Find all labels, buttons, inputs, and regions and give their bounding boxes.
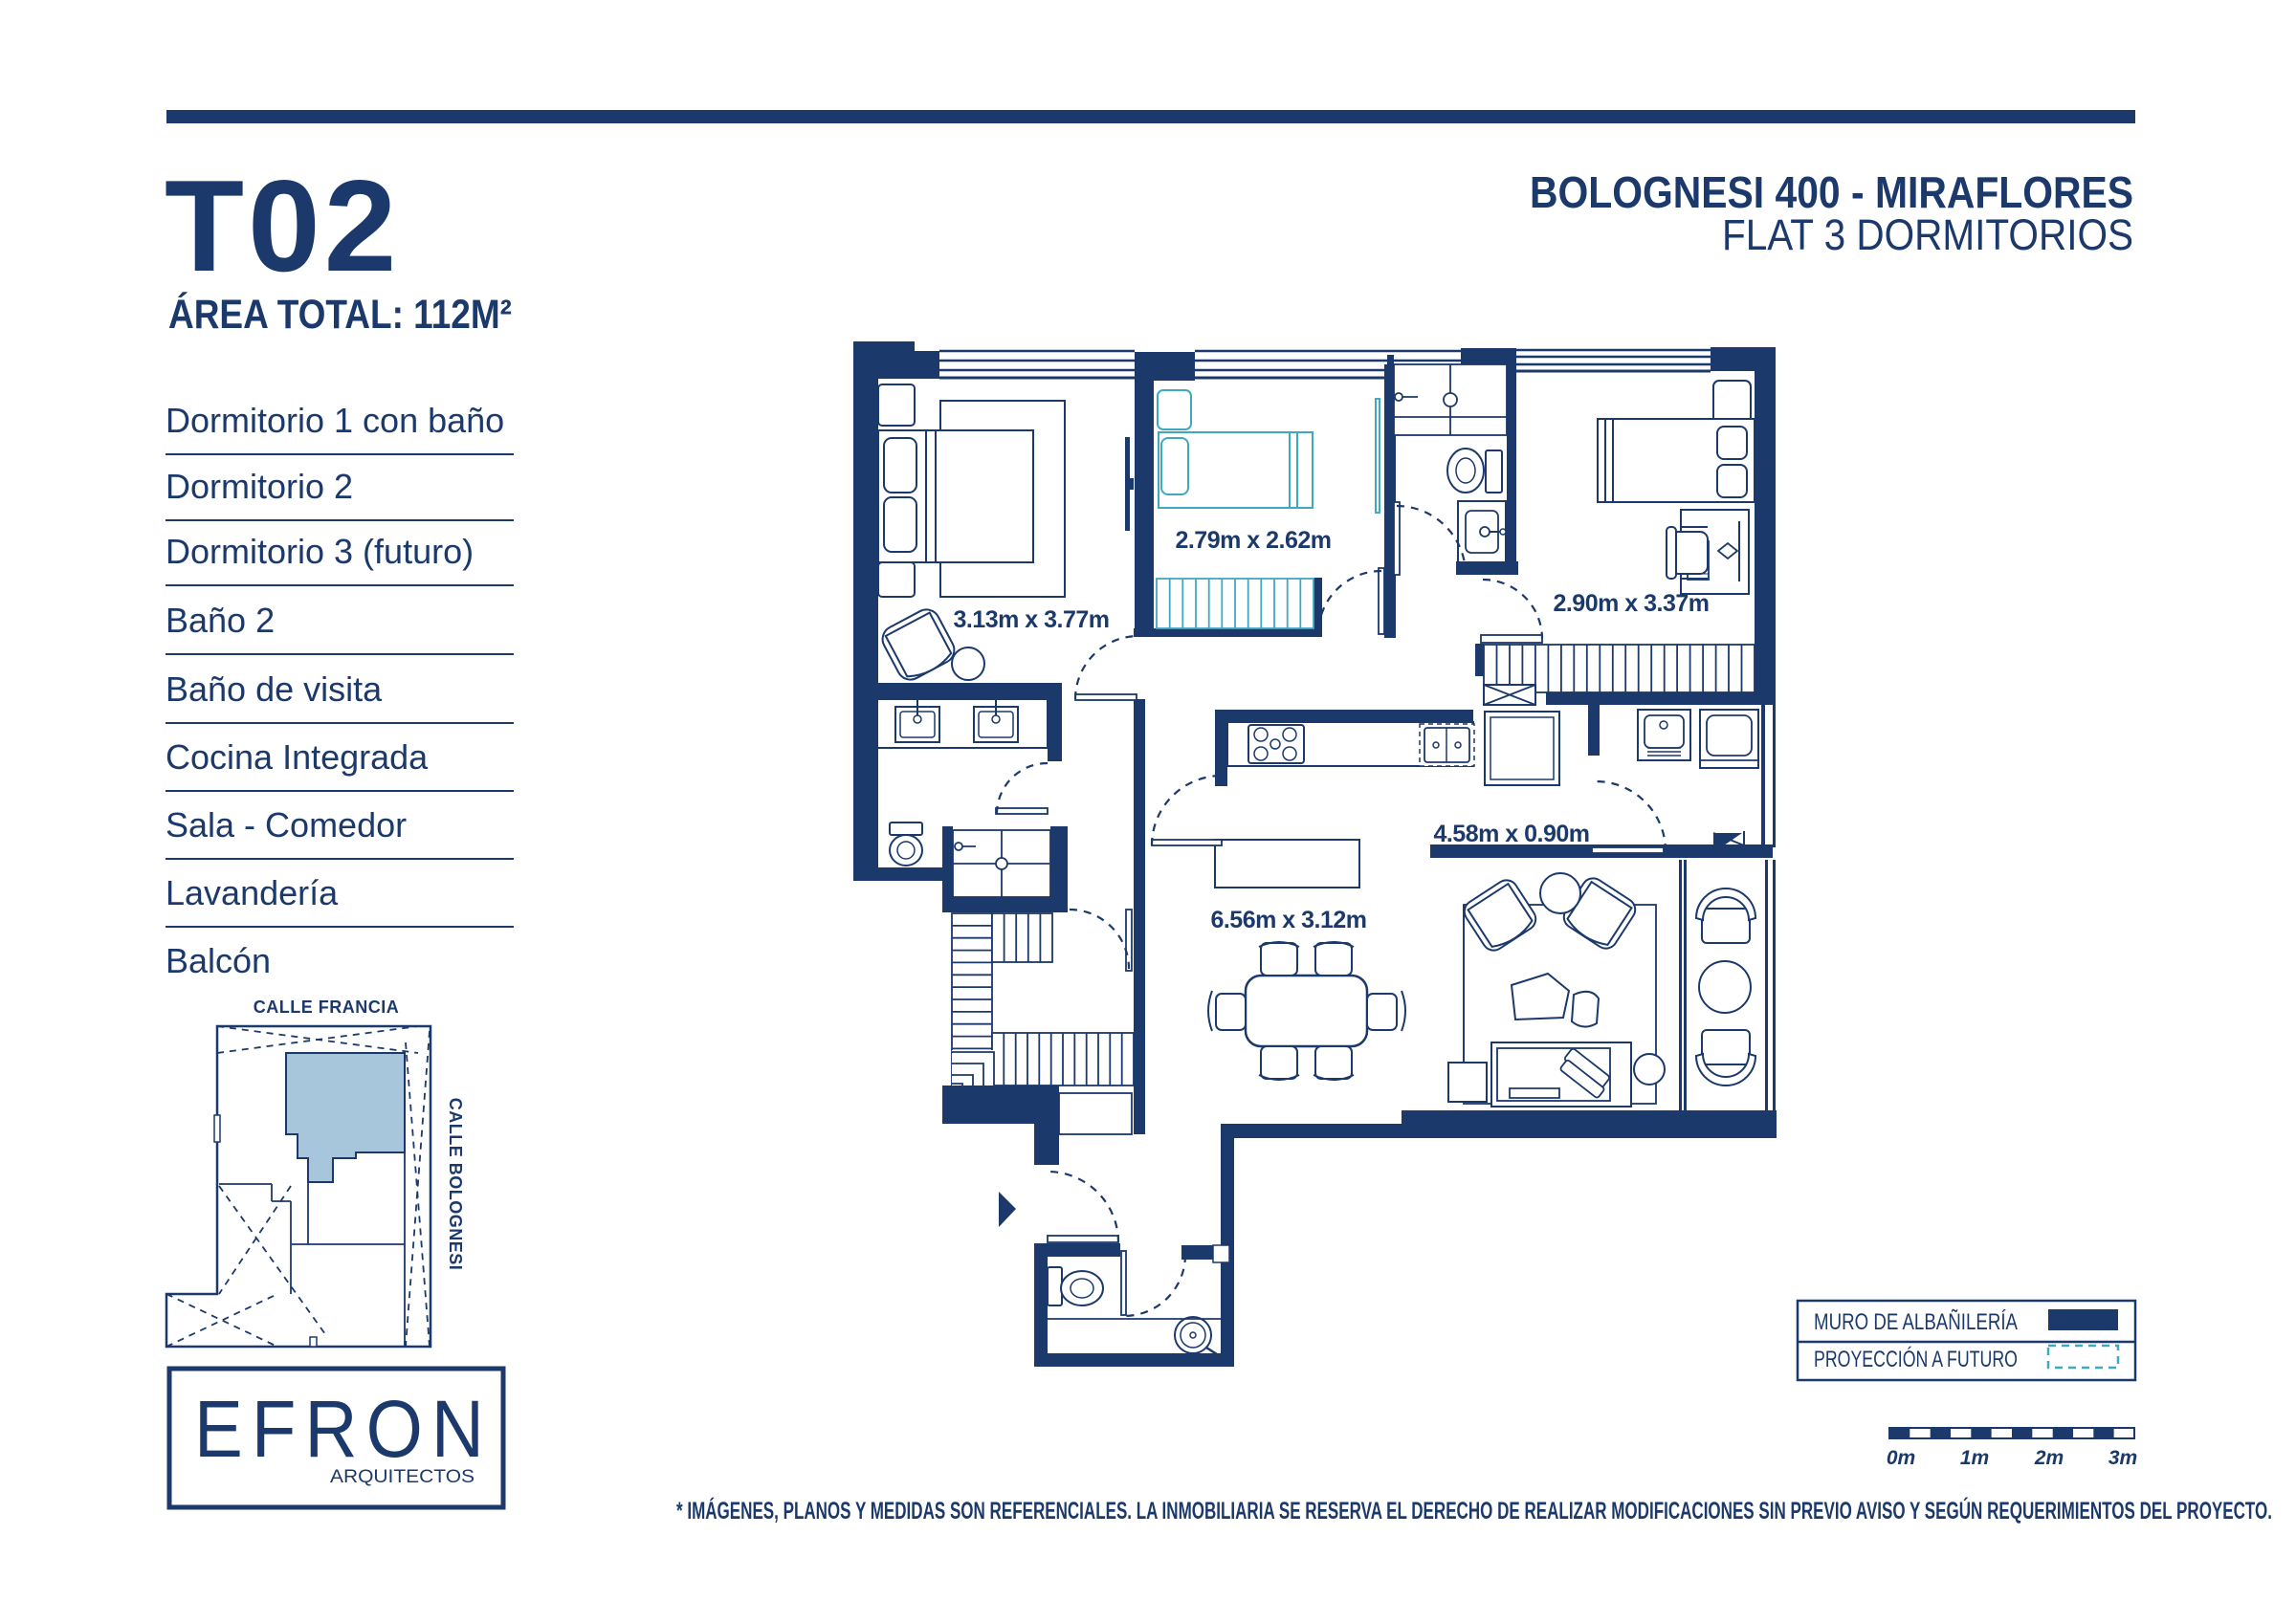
svg-text:2.79m x 2.62m: 2.79m x 2.62m <box>1175 527 1331 554</box>
svg-text:Baño 2: Baño 2 <box>166 601 275 640</box>
svg-text:4.58m x 0.90m: 4.58m x 0.90m <box>1433 821 1589 847</box>
svg-text:Sala - Comedor: Sala - Comedor <box>166 805 407 844</box>
svg-text:Dormitorio 3 (futuro): Dormitorio 3 (futuro) <box>166 532 474 571</box>
svg-text:EFRON: EFRON <box>194 1384 493 1474</box>
svg-text:FLAT 3 DORMITORIOS: FLAT 3 DORMITORIOS <box>1722 210 2133 259</box>
svg-text:2.90m x 3.37m: 2.90m x 3.37m <box>1553 590 1709 617</box>
svg-text:PROYECCIÓN A FUTURO: PROYECCIÓN A FUTURO <box>1814 1347 2018 1372</box>
svg-text:0m: 0m <box>1887 1447 1915 1469</box>
svg-text:3.13m x 3.77m: 3.13m x 3.77m <box>953 606 1109 633</box>
svg-text:ÁREA TOTAL: 112M²: ÁREA TOTAL: 112M² <box>168 292 512 338</box>
svg-text:Dormitorio 1 con baño: Dormitorio 1 con baño <box>166 401 504 440</box>
svg-text:6.56m x 3.12m: 6.56m x 3.12m <box>1210 907 1366 933</box>
svg-text:2m: 2m <box>2034 1447 2064 1469</box>
svg-text:ARQUITECTOS: ARQUITECTOS <box>330 1467 475 1487</box>
svg-text:Balcón: Balcón <box>166 941 271 980</box>
svg-text:3m: 3m <box>2108 1447 2137 1469</box>
svg-text:Baño de visita: Baño de visita <box>166 669 383 709</box>
svg-text:MURO DE ALBAÑILERÍA: MURO DE ALBAÑILERÍA <box>1814 1309 2018 1335</box>
svg-text:Dormitorio 2: Dormitorio 2 <box>166 467 353 506</box>
svg-text:CALLE FRANCIA: CALLE FRANCIA <box>254 998 400 1017</box>
svg-text:Cocina Integrada: Cocina Integrada <box>166 737 429 777</box>
svg-text:Lavandería: Lavandería <box>166 873 339 912</box>
svg-text:1m: 1m <box>1960 1447 1989 1469</box>
svg-text:T02: T02 <box>165 153 400 298</box>
svg-text:* IMÁGENES, PLANOS Y MEDIDAS S: * IMÁGENES, PLANOS Y MEDIDAS SON REFEREN… <box>676 1496 2272 1524</box>
svg-text:CALLE BOLOGNESI: CALLE BOLOGNESI <box>446 1098 465 1271</box>
